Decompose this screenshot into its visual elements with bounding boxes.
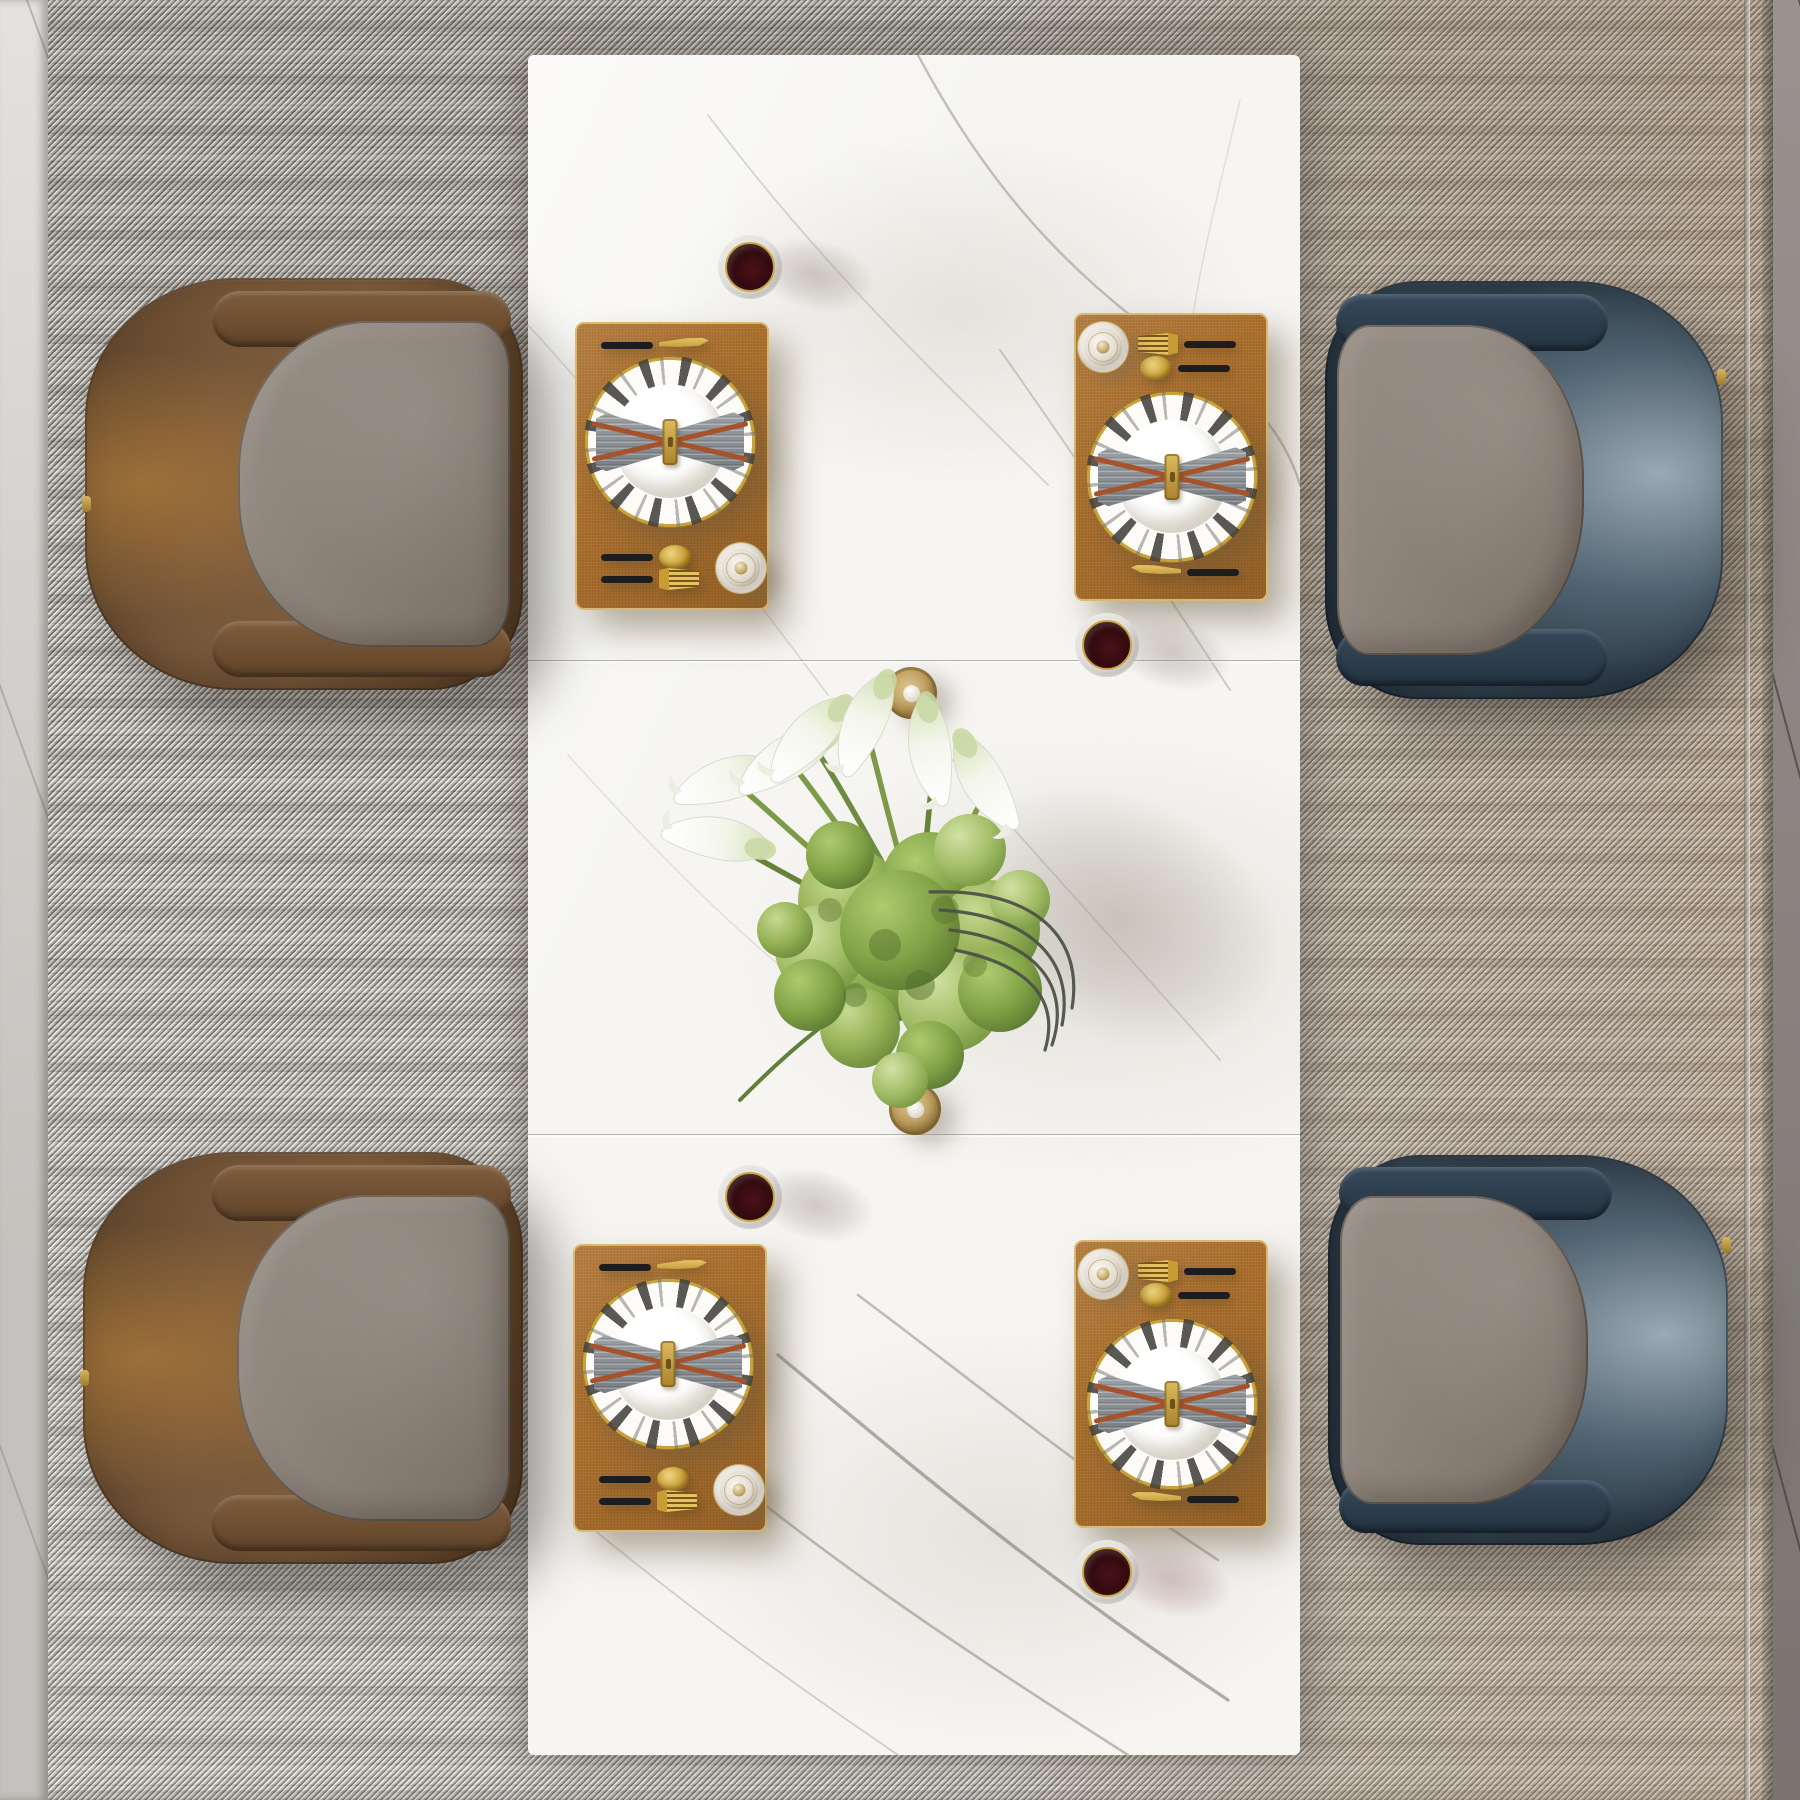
- chair-top-right: [1325, 281, 1723, 699]
- fork-icon: [601, 568, 699, 590]
- water-glass: [713, 1464, 765, 1516]
- gold-leg-glint-icon: [80, 1370, 89, 1386]
- knife-icon: [601, 338, 709, 352]
- napkin-buckle-icon: [663, 419, 678, 465]
- rug-right-edge: [1762, 0, 1773, 1800]
- spoon-icon: [599, 1467, 689, 1491]
- chair-seat-cushion: [237, 1195, 510, 1520]
- wine-glass-bottom: [1075, 1540, 1139, 1604]
- fork-icon: [1138, 333, 1236, 355]
- gold-leg-glint-icon: [1717, 369, 1726, 385]
- napkin-buckle-icon: [1165, 1381, 1180, 1427]
- water-glass: [1077, 321, 1129, 373]
- knife-icon: [1131, 1492, 1239, 1506]
- chair-seat-cushion: [238, 321, 510, 646]
- chair-seat-cushion: [1340, 1196, 1588, 1504]
- spoon-icon: [1140, 1283, 1230, 1307]
- dining-scene: [0, 0, 1800, 1800]
- gold-leg-glint-icon: [82, 496, 91, 512]
- spoon-icon: [1140, 356, 1230, 380]
- dinner-plate: [582, 1278, 754, 1450]
- dinner-plate: [1086, 391, 1258, 563]
- spoon-icon: [601, 545, 691, 569]
- rug-binding-stripe: [1744, 0, 1750, 1800]
- water-glass: [715, 542, 767, 594]
- marble-floor-right: [1773, 0, 1800, 1800]
- napkin-buckle-icon: [661, 1341, 676, 1387]
- marble-floor-left: [0, 0, 48, 1800]
- napkin-buckle-icon: [1165, 454, 1180, 500]
- placemat-bottom-right: [1074, 1240, 1268, 1528]
- flower-centerpiece: [600, 600, 1120, 1160]
- chair-bottom-right: [1328, 1155, 1728, 1545]
- chair-top-left: [85, 278, 523, 690]
- placemat-top-left: [575, 322, 769, 610]
- gold-leg-glint-icon: [1722, 1237, 1731, 1253]
- fork-icon: [599, 1490, 697, 1512]
- water-glass: [1077, 1248, 1129, 1300]
- wine-glass-top: [718, 235, 782, 299]
- chair-bottom-left: [83, 1152, 523, 1564]
- knife-icon: [1131, 565, 1239, 579]
- knife-icon: [599, 1260, 707, 1274]
- wine-glass-lower-left: [718, 1165, 782, 1229]
- chair-seat-cushion: [1337, 325, 1584, 655]
- placemat-top-right: [1074, 313, 1268, 601]
- fork-icon: [1138, 1260, 1236, 1282]
- placemat-bottom-left: [573, 1244, 767, 1532]
- dinner-plate: [584, 356, 756, 528]
- dinner-plate: [1086, 1318, 1258, 1490]
- hydrangea-foliage: [757, 814, 1050, 1108]
